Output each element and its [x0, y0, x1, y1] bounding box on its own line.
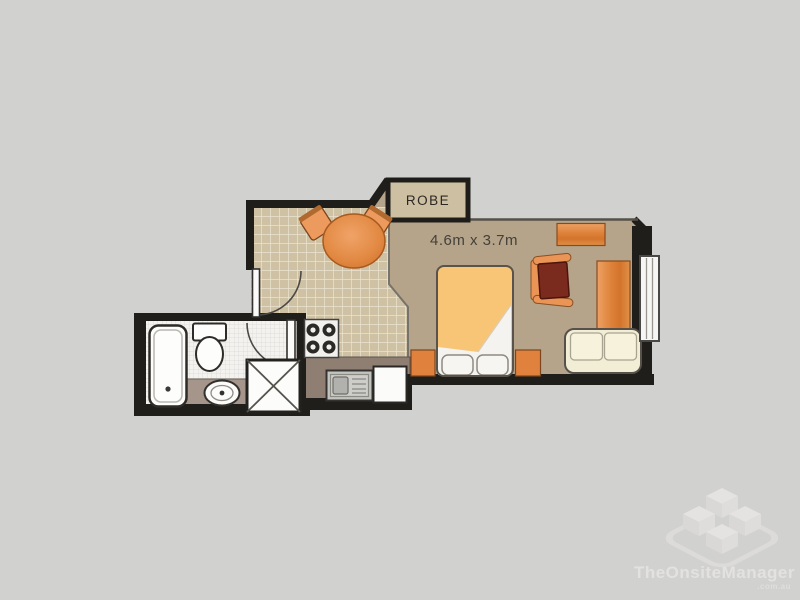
basin [205, 381, 240, 406]
tub-drain [165, 386, 170, 391]
sink [327, 371, 373, 401]
watermark-brand: TheOnsiteManager [634, 563, 795, 582]
floor-plan-canvas: ROBE [0, 0, 800, 600]
bed [437, 266, 513, 376]
kitchen-left-wall [246, 200, 254, 270]
kitchen-top-wall [246, 200, 374, 208]
sofa-cushion-right [605, 333, 637, 360]
entry-door-leaf [253, 269, 260, 317]
nightstand-right [516, 350, 541, 376]
bed-pillow-left [442, 355, 473, 375]
bathroom-left-wall [134, 313, 146, 416]
armchair-seat [538, 262, 569, 299]
nightstand-left [411, 350, 435, 376]
window [640, 256, 659, 341]
bathroom-top-wall [134, 313, 306, 321]
toilet [193, 324, 226, 372]
sink-bowl [333, 377, 348, 394]
robe-label: ROBE [406, 193, 450, 208]
side-table [597, 261, 630, 331]
desk-top [557, 224, 605, 246]
sofa [565, 329, 641, 373]
shower [247, 360, 300, 412]
stove [305, 320, 339, 358]
sofa-cushion-left [571, 333, 603, 360]
watermark-domain: .com.au [757, 582, 791, 591]
robe-closet: ROBE [388, 180, 468, 220]
room-dimensions-label: 4.6m x 3.7m [430, 232, 518, 249]
bathtub [150, 326, 187, 407]
bed-pillow-right [477, 355, 508, 375]
dining-table [323, 214, 385, 268]
kitchen-bench [374, 367, 407, 403]
armchair [531, 253, 573, 307]
floor-plan-page: ROBE [0, 0, 800, 600]
